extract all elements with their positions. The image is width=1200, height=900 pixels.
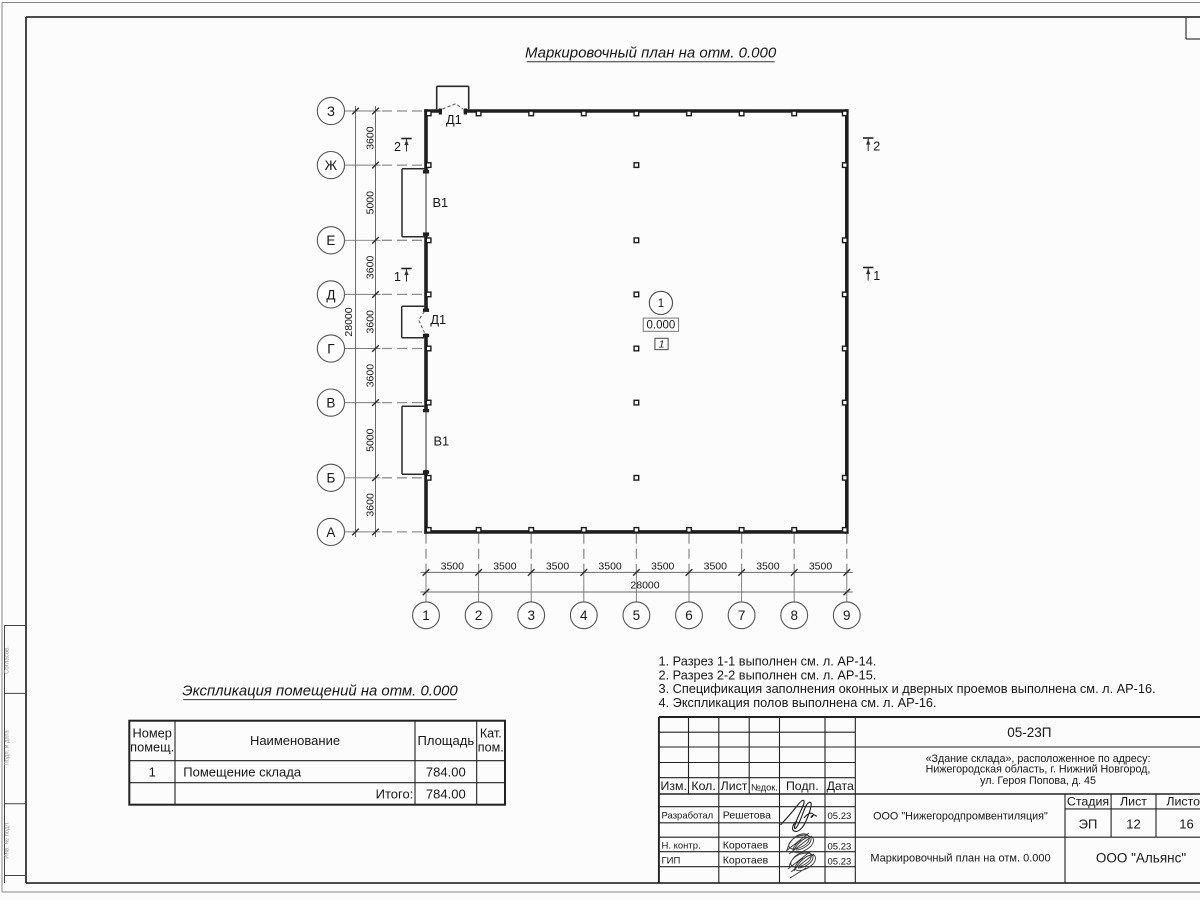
svg-text:3500: 3500	[651, 561, 675, 573]
svg-text:Решетова: Решетова	[723, 809, 771, 821]
svg-text:2: 2	[475, 608, 483, 623]
svg-text:1: 1	[659, 339, 665, 351]
svg-text:№док.: №док.	[751, 783, 778, 793]
svg-text:ГИП: ГИП	[662, 856, 681, 867]
svg-text:Подп.: Подп.	[786, 779, 819, 793]
svg-text:2: 2	[394, 140, 401, 154]
svg-text:05.23: 05.23	[828, 857, 852, 868]
svg-text:Д1: Д1	[446, 112, 462, 127]
svg-text:Дата: Дата	[827, 779, 854, 793]
svg-text:Коротаев: Коротаев	[723, 840, 769, 852]
svg-text:5000: 5000	[364, 191, 376, 215]
svg-text:05.23: 05.23	[828, 811, 852, 822]
svg-text:28000: 28000	[630, 580, 659, 592]
svg-text:3500: 3500	[809, 561, 833, 573]
svg-text:1: 1	[422, 608, 430, 623]
svg-text:2. Разрез 2-2 выполнен см. л.: 2. Разрез 2-2 выполнен см. л. АР-15.	[659, 667, 877, 682]
svg-text:1: 1	[658, 298, 664, 310]
svg-text:3600: 3600	[364, 126, 376, 150]
svg-text:3500: 3500	[704, 561, 728, 573]
svg-text:2: 2	[873, 140, 880, 154]
svg-text:Б: Б	[326, 471, 335, 486]
svg-text:3500: 3500	[441, 561, 465, 573]
svg-text:3500: 3500	[598, 561, 622, 573]
svg-text:Подп. и дата: Подп. и дата	[5, 730, 11, 766]
svg-text:784.00: 784.00	[426, 787, 466, 802]
svg-text:Маркировочный план на отм. 0.0: Маркировочный план на отм. 0.000	[870, 853, 1050, 865]
svg-text:5: 5	[633, 608, 641, 623]
svg-text:3: 3	[527, 608, 535, 623]
svg-text:0.000: 0.000	[647, 320, 676, 332]
svg-text:ООО "Нижегородпромвентиляция": ООО "Нижегородпромвентиляция"	[873, 811, 1048, 823]
svg-text:Листов: Листов	[1166, 795, 1200, 809]
svg-text:пом.: пом.	[478, 740, 504, 754]
svg-text:Д1: Д1	[430, 312, 446, 327]
svg-text:5000: 5000	[364, 428, 376, 452]
svg-text:3600: 3600	[364, 310, 376, 334]
svg-text:З: З	[327, 104, 335, 119]
svg-text:16: 16	[1179, 817, 1193, 832]
svg-text:1: 1	[394, 270, 401, 284]
svg-text:1. Разрез 1-1 выполнен см. л.: 1. Разрез 1-1 выполнен см. л. АР-14.	[659, 653, 877, 668]
svg-text:В1: В1	[434, 433, 450, 448]
svg-text:6: 6	[685, 608, 693, 623]
svg-text:Ж: Ж	[325, 158, 338, 173]
svg-text:3500: 3500	[493, 561, 517, 573]
svg-text:3600: 3600	[364, 364, 376, 388]
svg-text:1: 1	[149, 765, 156, 780]
svg-text:Д: Д	[326, 287, 335, 302]
svg-text:3500: 3500	[756, 561, 780, 573]
svg-text:Кат.: Кат.	[480, 726, 502, 740]
svg-text:Разработал: Разработал	[662, 810, 714, 821]
svg-text:4: 4	[580, 608, 588, 623]
svg-text:ЭП: ЭП	[1079, 817, 1098, 832]
svg-text:8: 8	[790, 608, 798, 623]
svg-text:9: 9	[843, 608, 851, 623]
svg-text:Экспликация помещений на отм.: Экспликация помещений на отм. 0.000	[182, 683, 458, 699]
svg-text:Коротаев: Коротаев	[723, 855, 769, 867]
svg-text:ООО "Альянс": ООО "Альянс"	[1096, 851, 1186, 866]
svg-text:3. Спецификация заполнения око: 3. Спецификация заполнения оконных и две…	[659, 681, 1156, 696]
svg-text:помещ.: помещ.	[130, 739, 174, 754]
svg-text:1: 1	[873, 269, 880, 283]
svg-text:Стадия: Стадия	[1067, 795, 1109, 809]
svg-text:3600: 3600	[364, 493, 376, 517]
svg-text:Номер: Номер	[133, 725, 172, 740]
svg-text:4. Экспликация полов выполнена: 4. Экспликация полов выполнена см. л. АР…	[659, 695, 937, 710]
svg-text:Инв. № подл.: Инв. № подл.	[4, 821, 11, 859]
svg-text:Согласов.: Согласов.	[5, 646, 11, 674]
svg-text:3600: 3600	[364, 256, 376, 280]
svg-text:7: 7	[738, 608, 746, 623]
svg-text:В1: В1	[433, 195, 449, 210]
svg-text:Площадь: Площадь	[418, 733, 475, 748]
svg-text:Изм.: Изм.	[661, 779, 687, 793]
svg-text:Н. контр.: Н. контр.	[662, 841, 701, 852]
svg-text:В: В	[326, 396, 335, 411]
svg-text:Лист: Лист	[721, 779, 748, 793]
svg-text:Наименование: Наименование	[250, 733, 340, 748]
svg-text:05.23: 05.23	[828, 842, 852, 853]
svg-text:Итого:: Итого:	[376, 787, 414, 802]
svg-text:3500: 3500	[546, 561, 570, 573]
svg-text:ул. Героя Попова, д. 45: ул. Героя Попова, д. 45	[980, 775, 1096, 787]
svg-text:05-23П: 05-23П	[1007, 725, 1051, 740]
svg-text:28000: 28000	[343, 307, 355, 336]
svg-text:А: А	[326, 525, 335, 540]
svg-text:Лист: Лист	[1120, 795, 1147, 809]
svg-text:Е: Е	[326, 233, 335, 248]
svg-text:Маркировочный план на отм. 0.0: Маркировочный план на отм. 0.000	[525, 45, 777, 62]
svg-text:784.00: 784.00	[426, 765, 466, 780]
svg-text:Г: Г	[327, 341, 335, 356]
svg-text:12: 12	[1126, 817, 1140, 832]
svg-text:Помещение склада: Помещение склада	[183, 765, 302, 780]
svg-text:Кол.: Кол.	[691, 779, 715, 793]
